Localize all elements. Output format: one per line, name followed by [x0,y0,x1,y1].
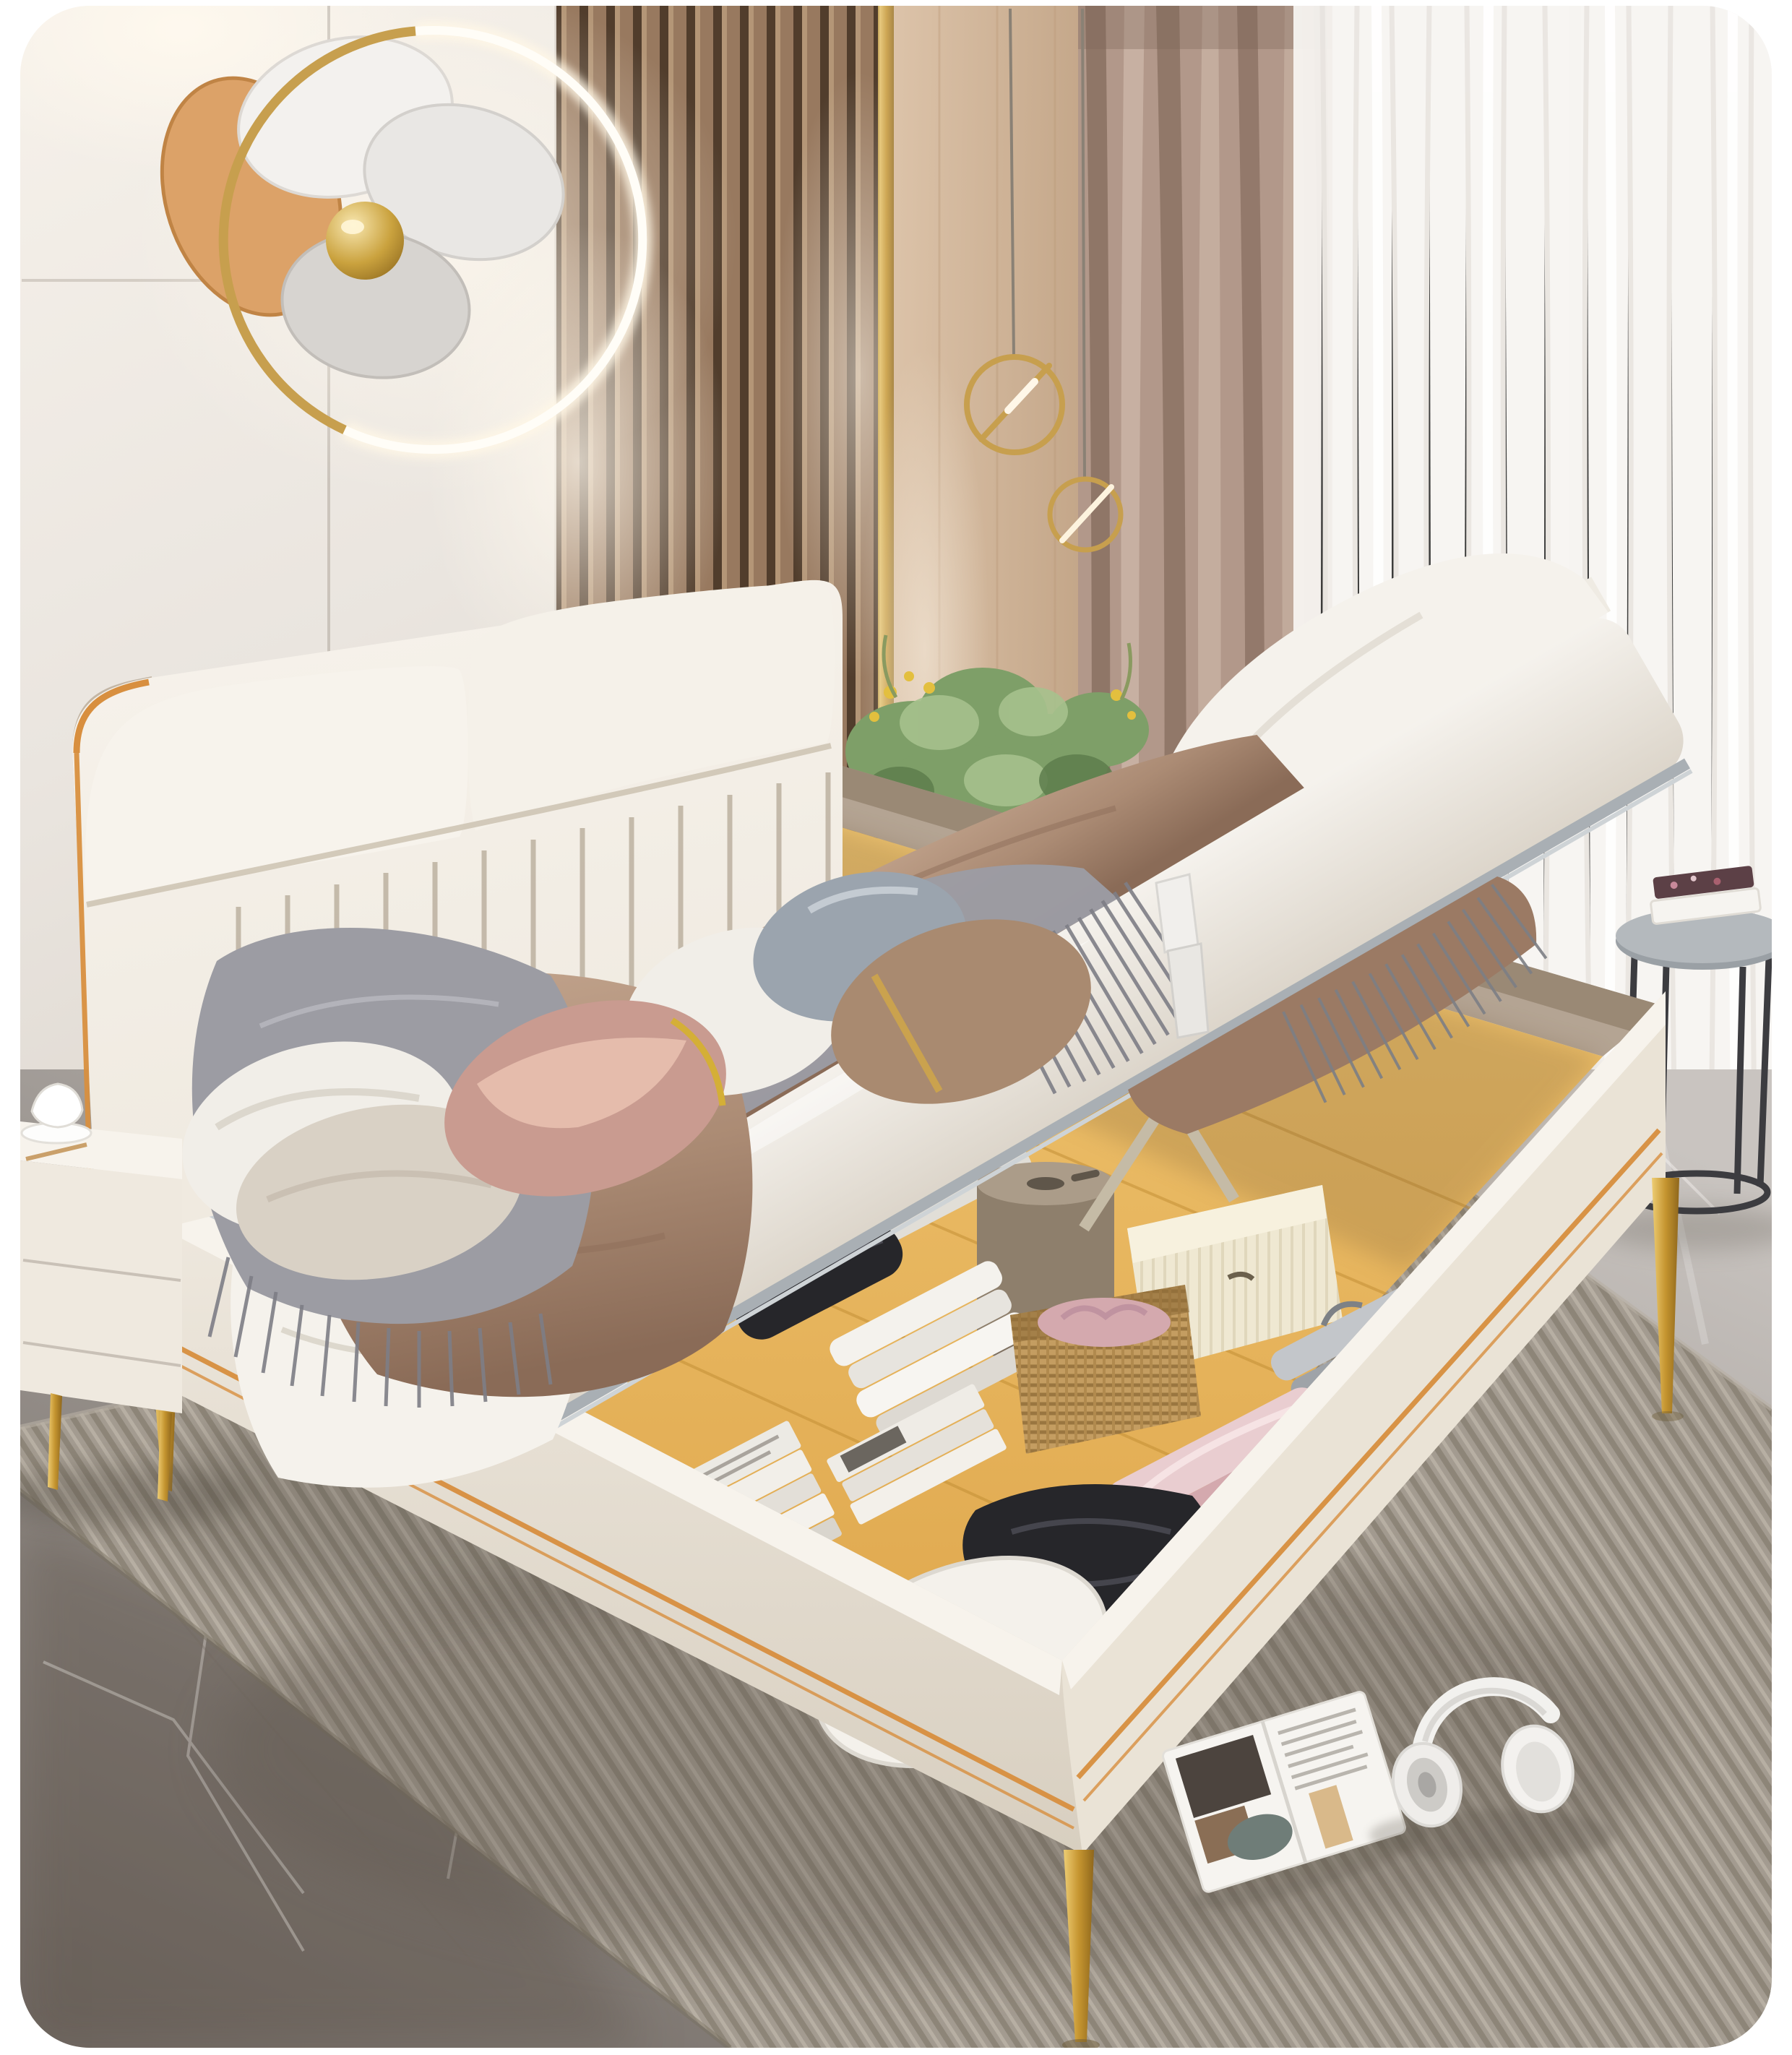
product-photo-stage: Modern cream upholstered hydraulic lift-… [0,0,1792,2055]
lamp-gold-sphere [326,202,404,280]
sphere-highlight [341,220,364,234]
petal-wall-lamp [130,0,737,499]
bedroom-photo: Modern cream upholstered hydraulic lift-… [0,0,1792,2055]
mauve-silks [1038,1298,1171,1347]
nightstand-body [20,1160,182,1413]
